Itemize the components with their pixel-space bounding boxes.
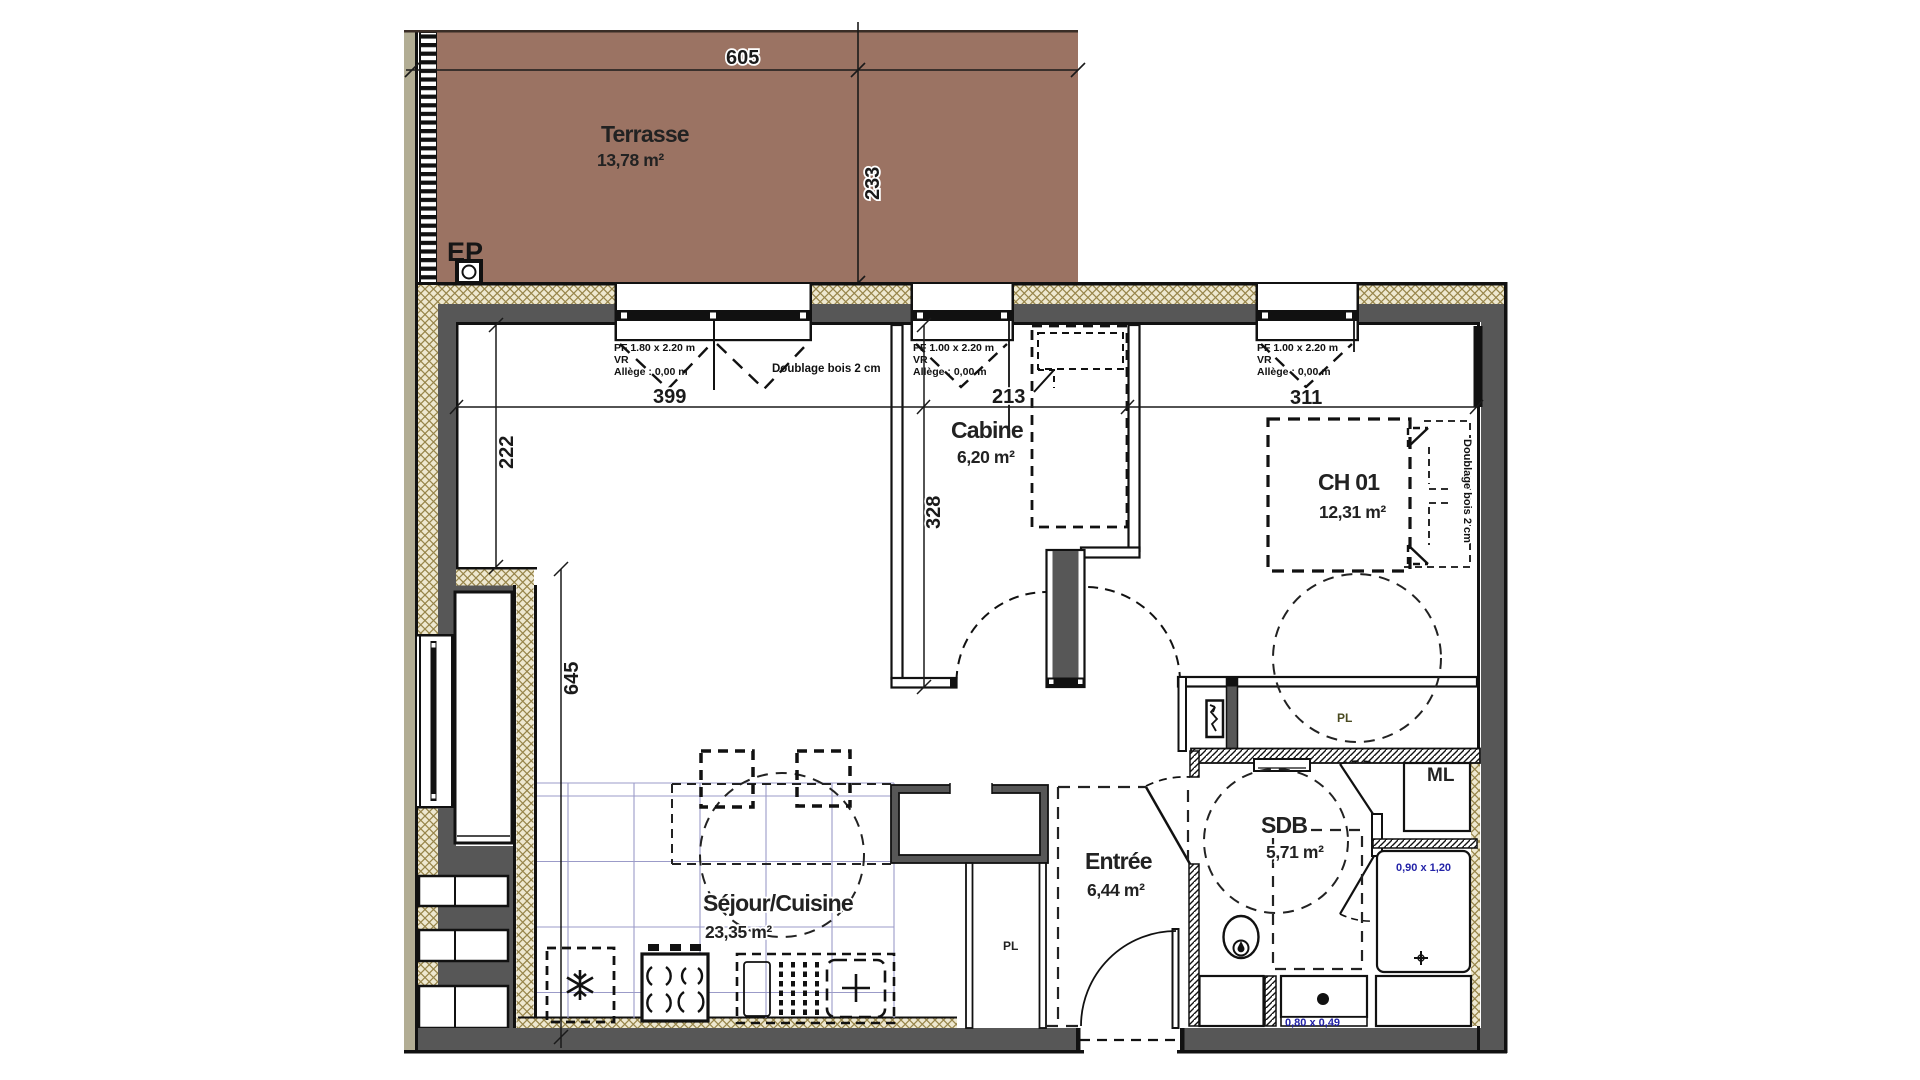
svg-text:Cabine: Cabine	[951, 417, 1023, 443]
svg-text:PF 1.00 x 2.20 m: PF 1.00 x 2.20 m	[1257, 342, 1338, 354]
svg-text:Terrasse: Terrasse	[601, 121, 689, 147]
svg-text:23,35 m²: 23,35 m²	[705, 922, 772, 942]
svg-text:399: 399	[653, 386, 686, 408]
svg-text:PL: PL	[1337, 711, 1352, 725]
svg-text:Doublage bois 2 cm: Doublage bois 2 cm	[1461, 439, 1473, 543]
svg-text:311: 311	[1290, 387, 1322, 409]
svg-text:PF 1.00 x 2.20 m: PF 1.00 x 2.20 m	[913, 342, 994, 354]
svg-text:Séjour/Cuisine: Séjour/Cuisine	[703, 890, 853, 916]
svg-text:PL: PL	[1003, 939, 1018, 953]
svg-text:SDB: SDB	[1261, 812, 1307, 838]
svg-text:5,71 m²: 5,71 m²	[1266, 842, 1324, 862]
svg-text:12,31 m²: 12,31 m²	[1319, 502, 1386, 522]
svg-text:ML: ML	[1427, 765, 1455, 786]
svg-text:6,20 m²: 6,20 m²	[957, 447, 1015, 467]
svg-text:Entrée: Entrée	[1085, 848, 1152, 874]
svg-text:328: 328	[923, 496, 945, 529]
svg-text:605: 605	[726, 47, 759, 69]
svg-text:645: 645	[561, 662, 583, 695]
svg-text:0,80 x 0,49: 0,80 x 0,49	[1285, 1017, 1340, 1029]
svg-text:0,90 x 1,20: 0,90 x 1,20	[1396, 862, 1451, 874]
svg-text:VR: VR	[913, 354, 928, 366]
svg-text:6,44 m²: 6,44 m²	[1087, 880, 1145, 900]
svg-text:Allège : 0,00 m: Allège : 0,00 m	[1257, 366, 1331, 378]
svg-text:VR: VR	[614, 354, 629, 366]
svg-text:PF 1.80 x 2.20 m: PF 1.80 x 2.20 m	[614, 342, 695, 354]
svg-text:13,78 m²: 13,78 m²	[597, 150, 664, 170]
svg-text:VR: VR	[1257, 354, 1272, 366]
svg-text:Doublage bois 2 cm: Doublage bois 2 cm	[772, 363, 881, 375]
svg-text:222: 222	[496, 436, 518, 469]
svg-text:233: 233	[862, 167, 884, 200]
svg-text:CH 01: CH 01	[1318, 469, 1380, 495]
svg-text:Allège : 0,00 m: Allège : 0,00 m	[614, 366, 688, 378]
svg-text:213: 213	[992, 386, 1025, 408]
